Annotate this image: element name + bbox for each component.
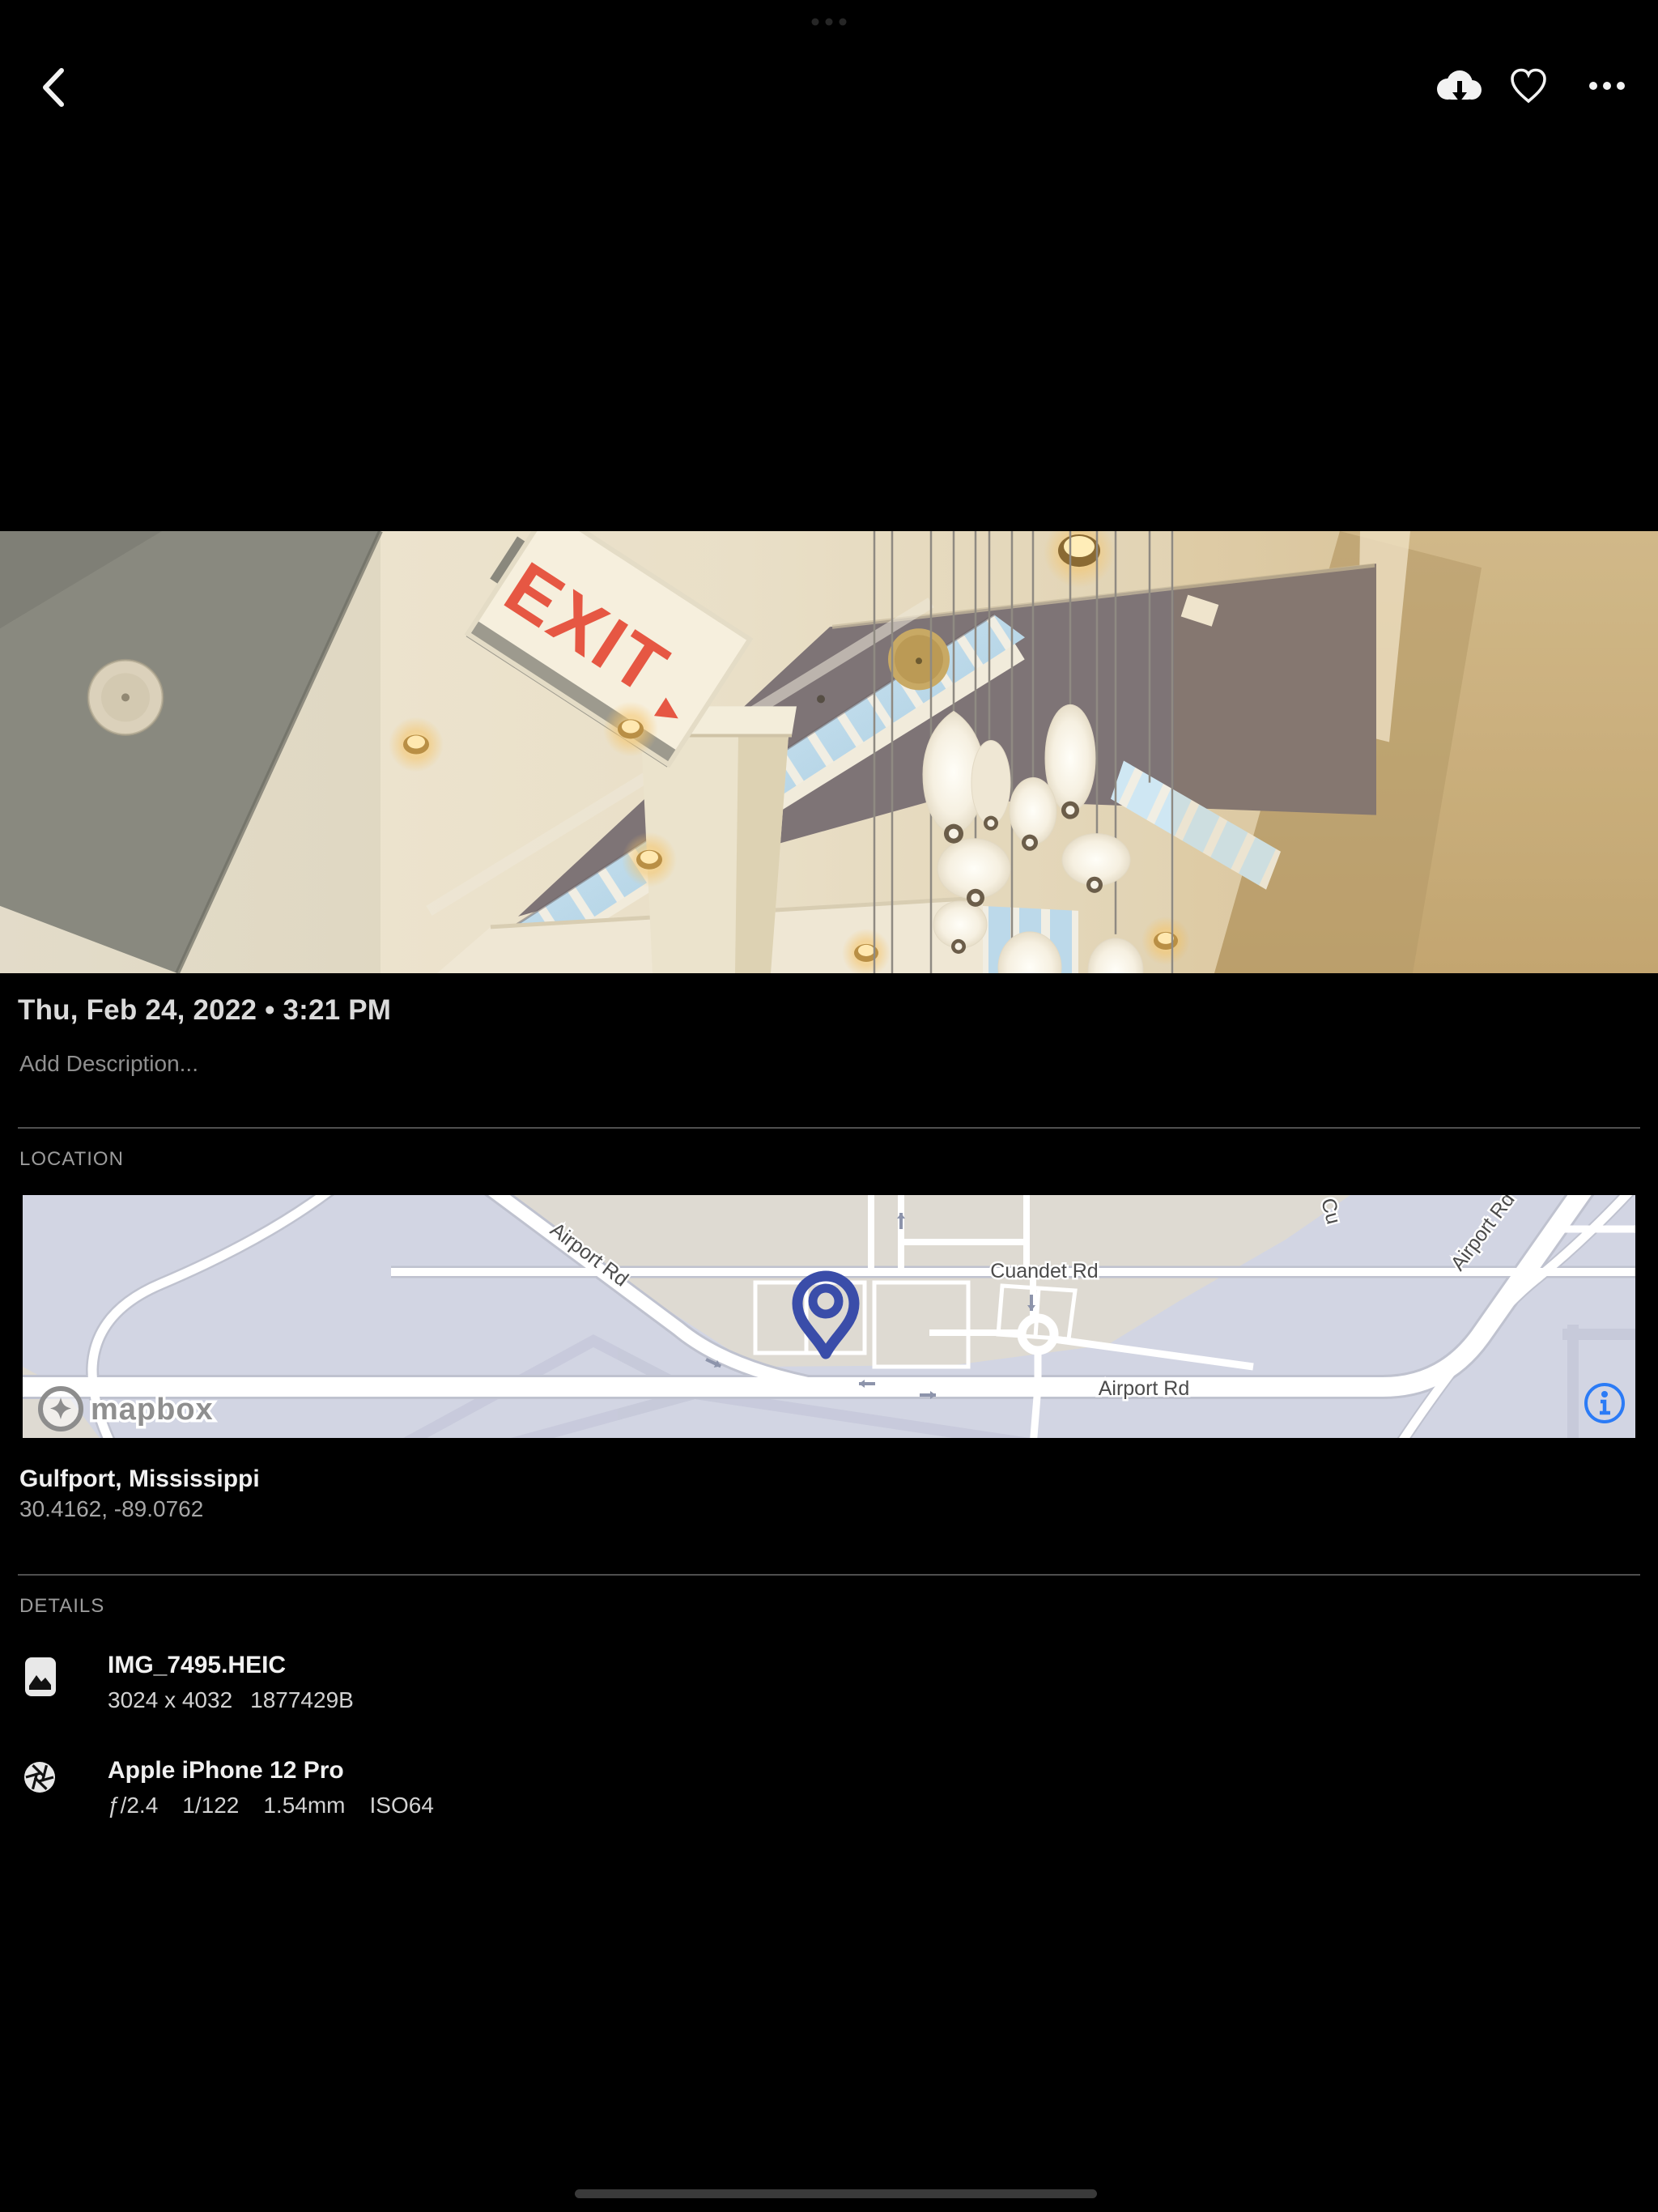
heart-icon [1512, 70, 1545, 102]
photo-image: EXIT ▸ [0, 531, 1658, 973]
camera-aperture-icon [23, 1760, 57, 1794]
download-button[interactable] [1431, 66, 1485, 108]
map-canvas: Airport Rd Airport Rd Airport Rd Cuandet… [23, 1195, 1635, 1438]
description-field[interactable]: Add Description... [19, 1051, 198, 1077]
map-label-cuandet-rd: Cuandet Rd [990, 1260, 1098, 1283]
file-name: IMG_7495.HEIC [108, 1652, 286, 1679]
camera-shutter: 1/122 [182, 1793, 239, 1818]
back-button[interactable] [39, 66, 68, 108]
home-indicator[interactable] [575, 2189, 1097, 2198]
multitask-indicator-icon[interactable] [810, 17, 848, 27]
location-place: Gulfport, Mississippi [19, 1465, 260, 1493]
location-section-label: LOCATION [19, 1148, 124, 1171]
top-bar [0, 49, 1658, 121]
photo-viewer[interactable]: EXIT ▸ [0, 531, 1658, 973]
camera-settings: ƒ/2.41/1221.54mmISO64 [108, 1793, 458, 1819]
camera-focal-length: 1.54mm [263, 1793, 345, 1818]
location-map[interactable]: Airport Rd Airport Rd Airport Rd Cuandet… [23, 1195, 1635, 1438]
map-label-airport-rd: Airport Rd [1099, 1377, 1190, 1400]
chevron-left-icon [45, 70, 62, 104]
file-info: 3024 x 40321877429B [108, 1687, 378, 1713]
mapbox-logo[interactable]: mapbox [40, 1389, 214, 1429]
location-coordinates: 30.4162, -89.0762 [19, 1496, 203, 1522]
camera-name: Apple iPhone 12 Pro [108, 1757, 344, 1784]
file-size: 1877429B [250, 1687, 354, 1712]
camera-aperture: ƒ/2.4 [108, 1793, 158, 1818]
photo-detail-screen: EXIT ▸ [0, 0, 1658, 2212]
photo-datetime: Thu, Feb 24, 2022 • 3:21 PM [18, 994, 391, 1027]
mapbox-wordmark: mapbox [91, 1393, 214, 1427]
divider [18, 1127, 1640, 1129]
image-file-icon [24, 1657, 57, 1697]
favorite-button[interactable] [1509, 66, 1548, 105]
divider [18, 1574, 1640, 1576]
camera-iso: ISO64 [370, 1793, 434, 1818]
file-dimensions: 3024 x 4032 [108, 1687, 232, 1712]
ellipsis-icon [1589, 82, 1625, 90]
details-section-label: DETAILS [19, 1595, 104, 1618]
cloud-download-icon [1437, 70, 1482, 102]
more-options-button[interactable] [1588, 81, 1626, 91]
